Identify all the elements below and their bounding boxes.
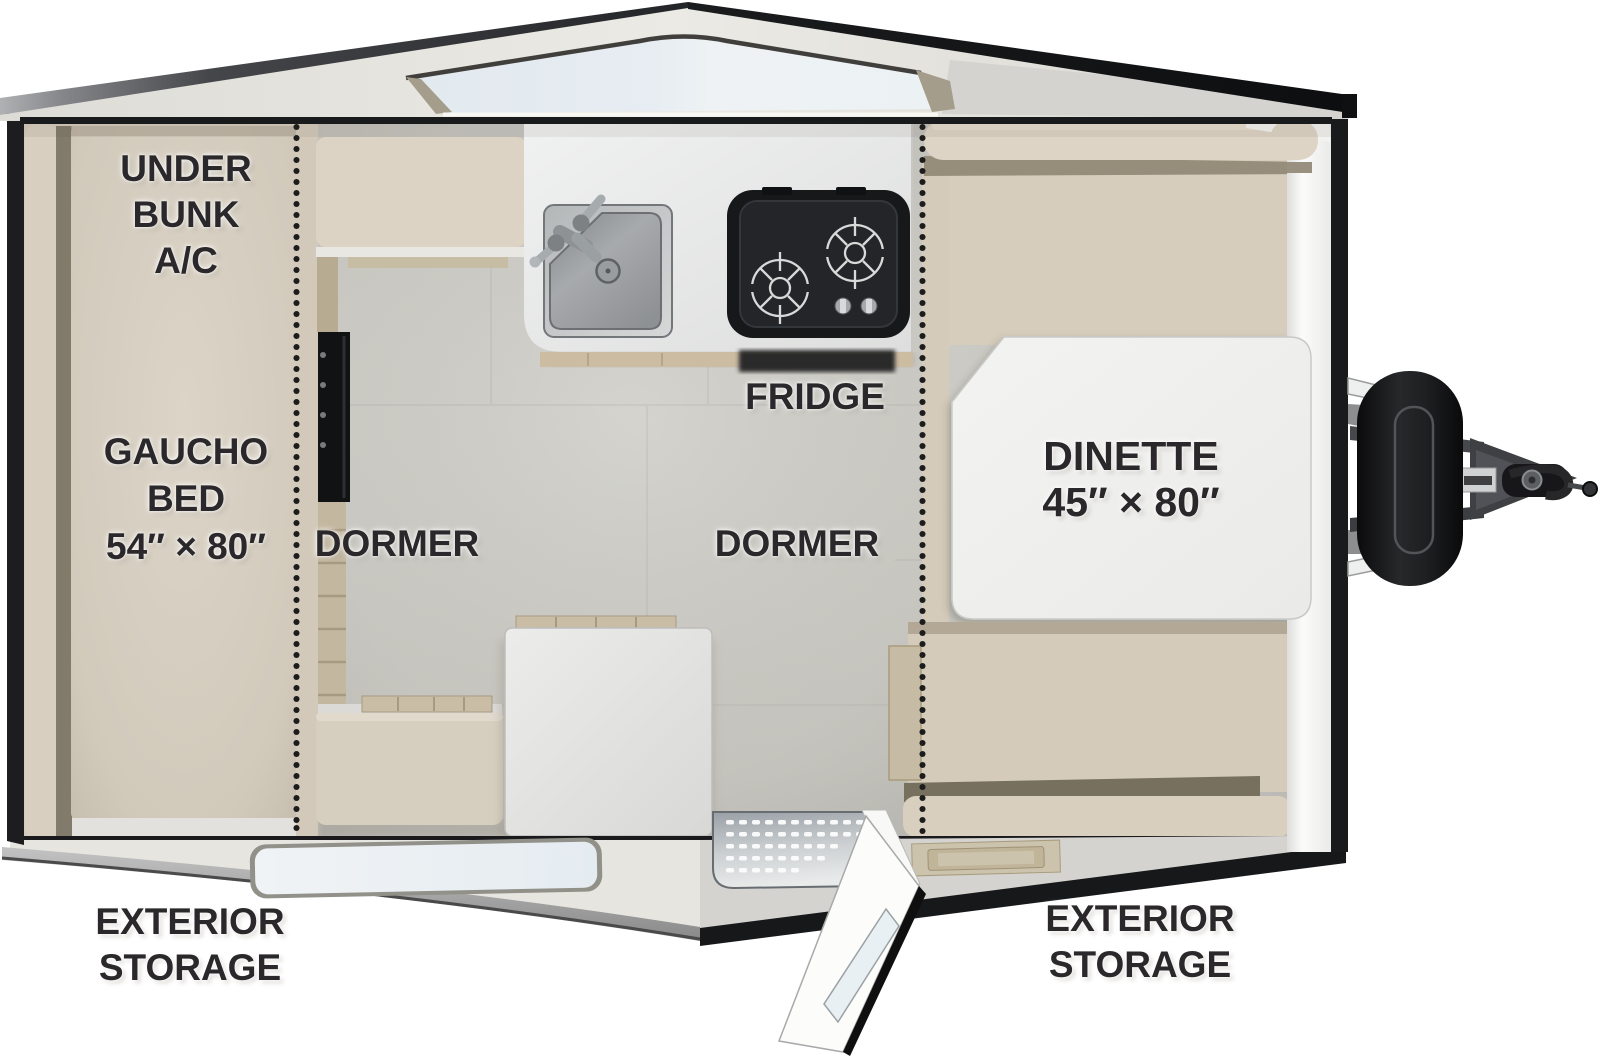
svg-text:DORMER: DORMER [315, 523, 479, 564]
svg-text:BUNK: BUNK [133, 194, 240, 235]
svg-text:UNDER: UNDER [120, 148, 252, 189]
svg-text:DINETTE: DINETTE [1043, 433, 1218, 479]
svg-text:45″ × 80″: 45″ × 80″ [1042, 479, 1219, 525]
svg-text:BED: BED [147, 478, 225, 519]
svg-text:A/C: A/C [154, 240, 218, 281]
svg-text:DORMER: DORMER [715, 523, 879, 564]
svg-text:FRIDGE: FRIDGE [745, 376, 885, 417]
svg-text:STORAGE: STORAGE [1049, 944, 1231, 985]
svg-text:EXTERIOR: EXTERIOR [1045, 898, 1234, 939]
svg-text:STORAGE: STORAGE [99, 947, 281, 988]
svg-text:GAUCHO: GAUCHO [104, 431, 268, 472]
svg-text:54″ × 80″: 54″ × 80″ [106, 526, 266, 567]
svg-text:EXTERIOR: EXTERIOR [95, 901, 284, 942]
